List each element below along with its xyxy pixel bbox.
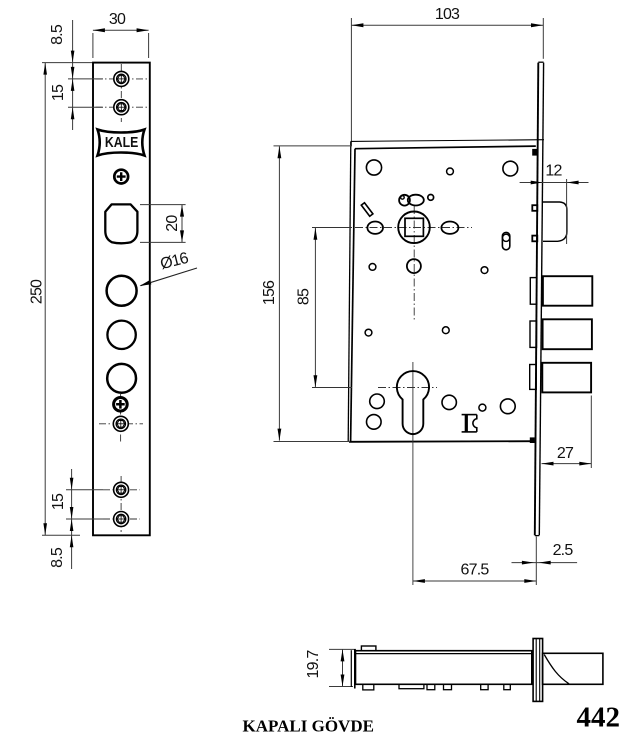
svg-text:KALE: KALE (105, 135, 139, 151)
svg-text:30: 30 (109, 11, 126, 28)
svg-text:250: 250 (29, 279, 46, 304)
svg-text:156: 156 (261, 280, 278, 305)
svg-text:2.5: 2.5 (553, 542, 574, 559)
svg-text:8.5: 8.5 (49, 547, 66, 568)
svg-text:20: 20 (164, 215, 181, 232)
svg-text:Ø16: Ø16 (159, 250, 191, 273)
svg-text:19.7: 19.7 (305, 650, 322, 679)
svg-text:67.5: 67.5 (461, 562, 490, 579)
svg-text:103: 103 (435, 6, 460, 23)
svg-text:27: 27 (557, 445, 574, 462)
svg-text:8.5: 8.5 (49, 24, 66, 45)
svg-text:442: 442 (577, 701, 621, 733)
svg-text:12: 12 (545, 163, 562, 180)
svg-text:KAPALI GÖVDE: KAPALI GÖVDE (243, 717, 374, 733)
svg-text:15: 15 (50, 493, 67, 510)
svg-text:85: 85 (296, 288, 313, 305)
svg-text:15: 15 (50, 84, 67, 101)
